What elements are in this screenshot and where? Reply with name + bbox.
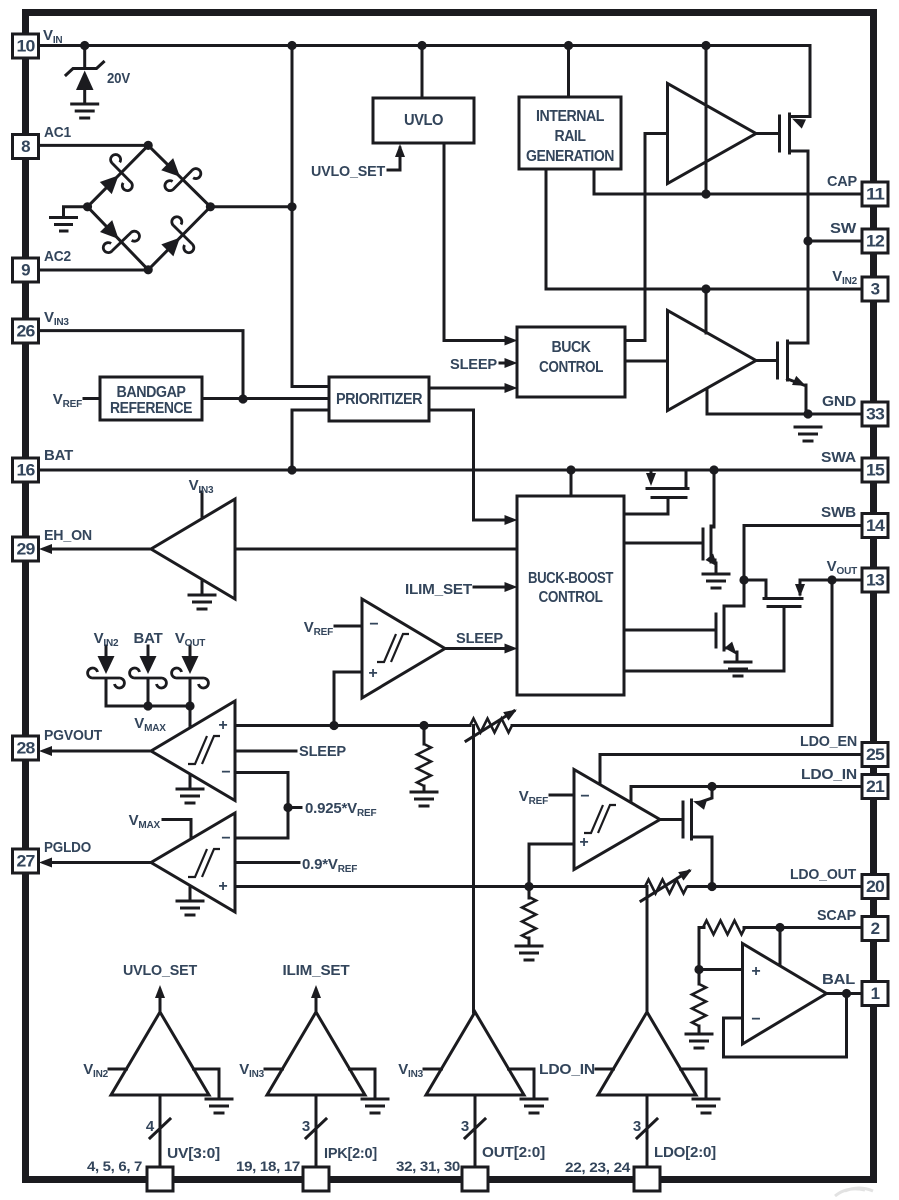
svg-text:3: 3: [461, 1118, 469, 1135]
svg-text:GENERATION: GENERATION: [526, 148, 614, 165]
svg-text:15: 15: [866, 461, 884, 480]
svg-text:−: −: [221, 830, 230, 847]
svg-text:14: 14: [866, 516, 885, 535]
svg-text:−: −: [369, 616, 378, 633]
svg-text:BUCK: BUCK: [552, 339, 592, 356]
svg-text:BAT: BAT: [44, 447, 73, 464]
svg-text:BANDGAP: BANDGAP: [117, 384, 186, 401]
svg-text:13: 13: [866, 571, 884, 590]
svg-text:−: −: [751, 1011, 760, 1028]
svg-text:UVLO_SET: UVLO_SET: [123, 962, 197, 979]
svg-text:4: 4: [146, 1118, 155, 1135]
svg-text:29: 29: [17, 540, 35, 559]
svg-text:LDO_EN: LDO_EN: [800, 733, 857, 750]
svg-text:GND: GND: [822, 393, 856, 410]
svg-text:PGLDO: PGLDO: [44, 839, 91, 856]
svg-text:20: 20: [866, 877, 884, 896]
svg-text:EH_ON: EH_ON: [44, 527, 92, 544]
svg-text:25: 25: [866, 745, 884, 764]
svg-text:CONTROL: CONTROL: [539, 589, 603, 606]
svg-text:SLEEP: SLEEP: [450, 356, 497, 373]
svg-text:ILIM_SET: ILIM_SET: [405, 581, 472, 598]
svg-text:26: 26: [17, 322, 35, 341]
svg-text:SWA: SWA: [821, 449, 856, 466]
svg-text:+: +: [218, 717, 227, 734]
svg-text:+: +: [579, 834, 588, 851]
svg-text:27: 27: [17, 852, 35, 871]
svg-text:PGVOUT: PGVOUT: [44, 727, 102, 744]
svg-text:UVLO_SET: UVLO_SET: [311, 163, 385, 180]
svg-text:4, 5, 6, 7: 4, 5, 6, 7: [87, 1159, 142, 1174]
svg-text:+: +: [751, 963, 760, 980]
svg-text:AC1: AC1: [44, 124, 71, 141]
svg-text:PRIORITIZER: PRIORITIZER: [336, 391, 422, 408]
svg-text:BAT: BAT: [134, 630, 163, 647]
svg-text:32, 31, 30: 32, 31, 30: [396, 1159, 460, 1174]
svg-text:+: +: [368, 665, 377, 682]
svg-text:SCAP: SCAP: [817, 907, 856, 924]
svg-text:21: 21: [866, 777, 884, 796]
svg-text:9: 9: [21, 261, 30, 280]
svg-text:8: 8: [21, 137, 30, 156]
svg-text:CAP: CAP: [827, 173, 857, 190]
svg-text:INTERNAL: INTERNAL: [536, 108, 604, 125]
svg-text:3: 3: [871, 280, 880, 299]
svg-text:16: 16: [17, 461, 35, 480]
svg-text:ILIM_SET: ILIM_SET: [283, 962, 350, 979]
svg-text:−: −: [580, 788, 589, 805]
svg-text:LDO_IN: LDO_IN: [801, 766, 857, 783]
svg-text:SWB: SWB: [821, 504, 856, 521]
svg-text:CONTROL: CONTROL: [539, 359, 603, 376]
svg-text:3: 3: [633, 1118, 641, 1135]
svg-text:LDO_IN: LDO_IN: [539, 1061, 595, 1078]
svg-text:3: 3: [302, 1118, 310, 1135]
svg-text:12: 12: [866, 232, 884, 251]
svg-text:11: 11: [866, 185, 884, 204]
svg-text:10: 10: [17, 37, 35, 56]
svg-text:SLEEP: SLEEP: [299, 743, 346, 760]
svg-text:SW: SW: [830, 220, 857, 237]
svg-text:BUCK-BOOST: BUCK-BOOST: [528, 570, 614, 587]
svg-text:−: −: [221, 764, 230, 781]
svg-text:28: 28: [17, 739, 35, 758]
svg-text:SLEEP: SLEEP: [456, 630, 503, 647]
svg-text:IPK[2:0]: IPK[2:0]: [324, 1145, 377, 1162]
svg-text:33: 33: [866, 405, 884, 424]
svg-text:20V: 20V: [107, 70, 130, 87]
svg-text:19, 18, 17: 19, 18, 17: [236, 1159, 300, 1174]
svg-text:REFERENCE: REFERENCE: [110, 400, 192, 417]
svg-text:AC2: AC2: [44, 248, 71, 265]
svg-text:LDO[2:0]: LDO[2:0]: [654, 1144, 716, 1161]
svg-text:2: 2: [871, 919, 880, 938]
svg-text:UVLO: UVLO: [404, 112, 443, 129]
svg-text:+: +: [218, 878, 227, 895]
svg-text:1: 1: [871, 984, 880, 1003]
svg-text:RAIL: RAIL: [555, 128, 586, 145]
svg-text:22, 23, 24: 22, 23, 24: [565, 1160, 631, 1175]
svg-text:UV[3:0]: UV[3:0]: [167, 1145, 220, 1162]
svg-text:LDO_OUT: LDO_OUT: [790, 866, 856, 883]
svg-text:OUT[2:0]: OUT[2:0]: [482, 1144, 545, 1161]
svg-text:BAL: BAL: [822, 971, 855, 988]
